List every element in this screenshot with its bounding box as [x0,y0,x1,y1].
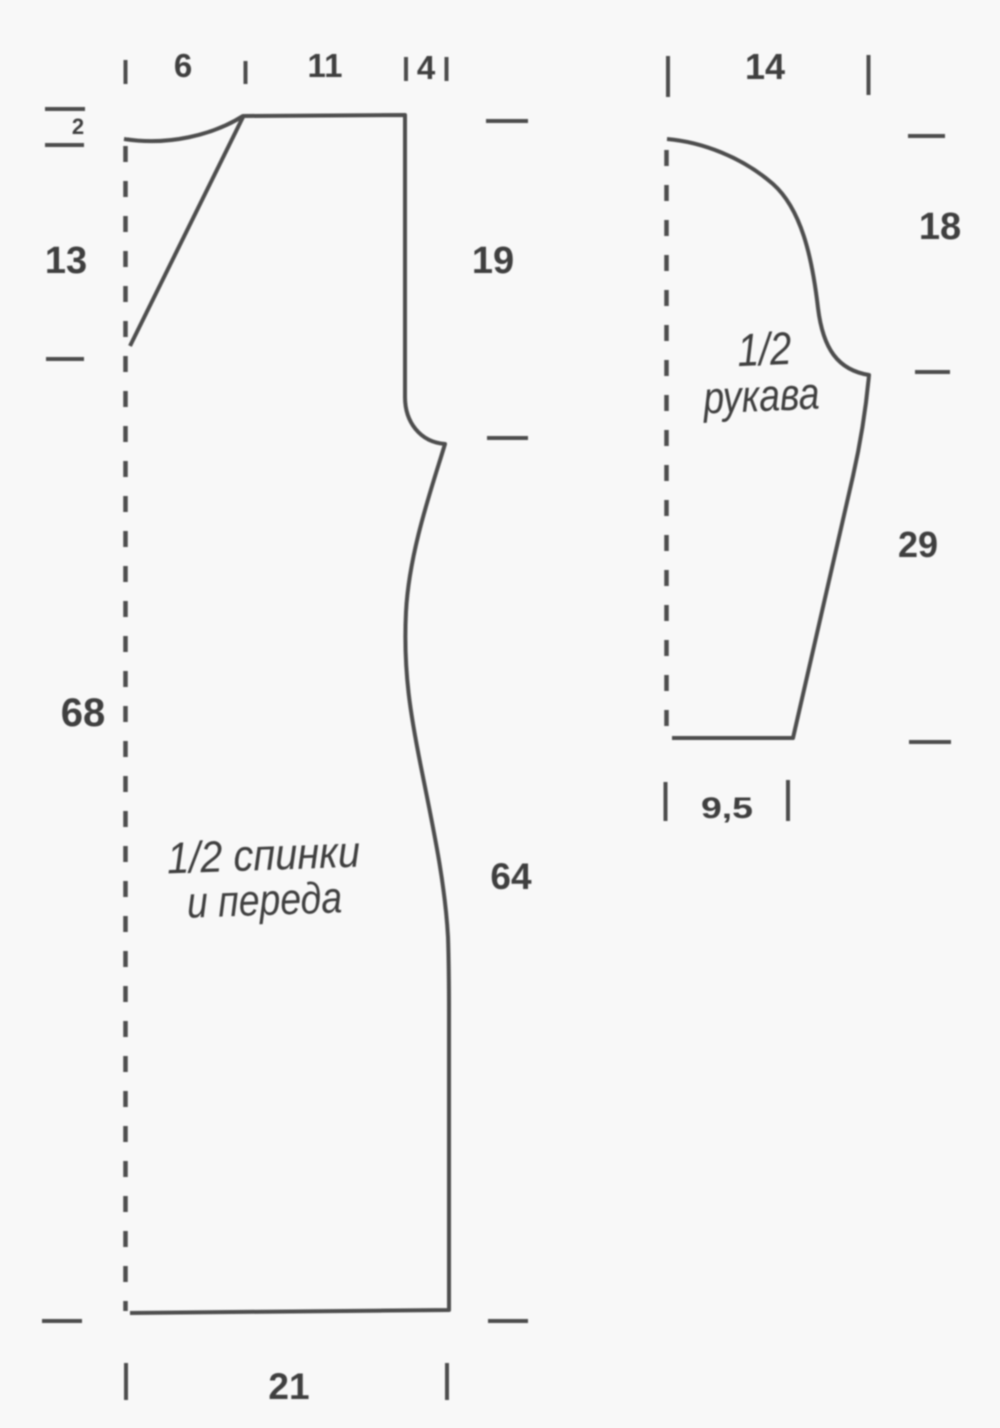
svg-text:68: 68 [61,691,106,735]
svg-text:рукава: рукава [701,368,821,424]
svg-text:6: 6 [174,47,192,84]
svg-text:18: 18 [919,206,961,248]
svg-text:2: 2 [72,114,84,139]
svg-text:29: 29 [898,524,938,565]
svg-text:21: 21 [268,1366,309,1407]
svg-text:64: 64 [490,856,532,897]
svg-text:19: 19 [472,240,514,282]
svg-text:13: 13 [45,240,87,282]
svg-text:4: 4 [417,49,436,86]
svg-text:и переда: и переда [186,873,343,927]
svg-text:11: 11 [308,47,343,84]
svg-text:14: 14 [745,46,785,87]
svg-text:9,5: 9,5 [701,792,753,825]
